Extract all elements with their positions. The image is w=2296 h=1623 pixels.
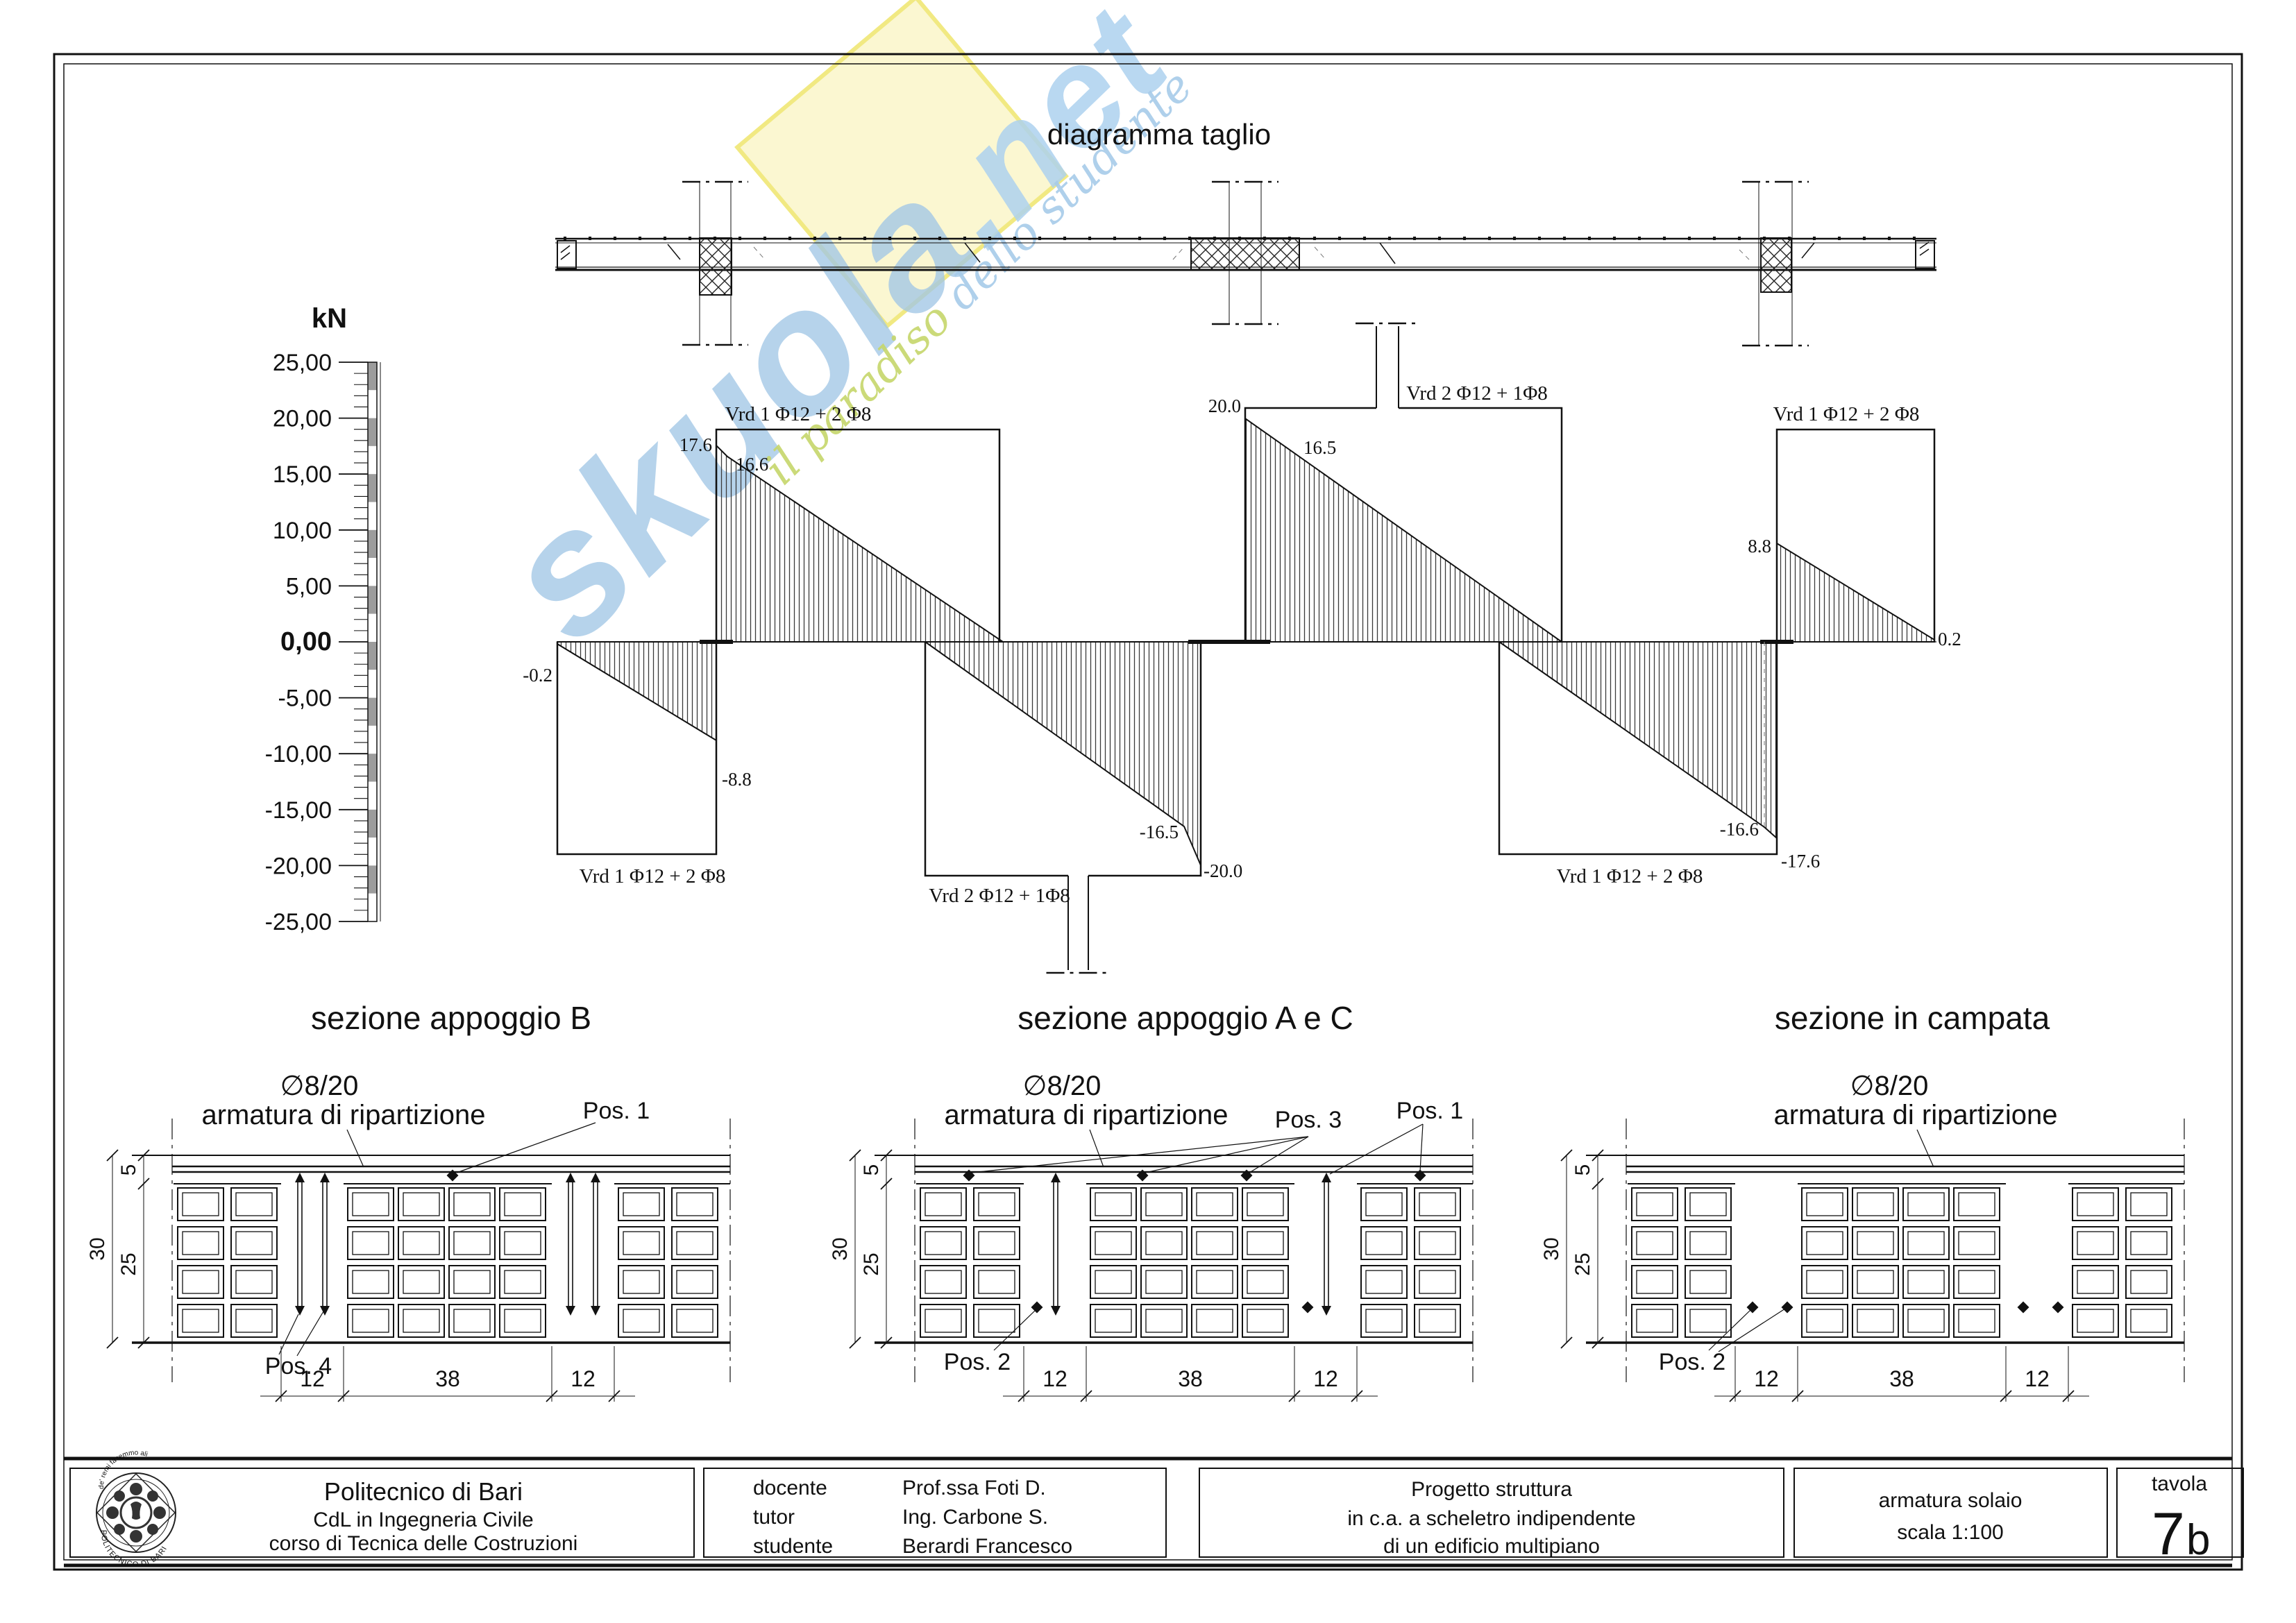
shear-value-label: 16.6 [736,454,768,475]
slab-tick [1013,237,1016,240]
hollow-block-inner [236,1271,272,1293]
arrow-down-icon [295,1306,305,1316]
hollow-block-inner [677,1309,713,1332]
dim-12: 12 [571,1366,596,1391]
ruler-segment [368,642,377,670]
dim-30: 30 [829,1237,852,1260]
slab-tick [1838,237,1841,240]
slab-tick [988,237,991,240]
slab-tick [1813,237,1816,240]
drawing-sheet: skuola.net il paradiso dello studente di… [0,0,2296,1623]
hollow-block-inner [505,1193,541,1216]
beam-schematic [555,182,1936,346]
shear-value-label: 8.8 [1748,536,1771,556]
shear-region [716,445,1003,642]
axis-tick-label: 25,00 [273,350,332,376]
dim-12: 12 [1313,1366,1338,1391]
hollow-block-inner [2077,1309,2113,1332]
axis-tick-label: 0,00 [280,627,332,656]
hollow-block-inner [1095,1271,1131,1293]
role-label-docente: docente [753,1477,827,1499]
hollow-block-inner [1690,1193,1726,1216]
pos-label: Pos. 2 [944,1349,1011,1375]
hollow-block-inner [2131,1232,2167,1255]
hollow-block-inner [1807,1271,1843,1293]
bar-diamond-marker [2052,1302,2064,1314]
slab-tick [1863,237,1866,240]
axis-tick-label: 10,00 [273,518,332,544]
slab-tick [1313,237,1316,240]
bar-diamond-marker [1302,1302,1314,1314]
hollow-block-inner [353,1193,389,1216]
shear-value-label: 0.2 [1938,629,1961,649]
hollow-block-inner [623,1193,659,1216]
section-0: sezione appoggio B∅8/20armatura di ripar… [86,1000,730,1402]
dim-30: 30 [86,1237,109,1260]
dim-12: 12 [2025,1366,2050,1391]
pos-label: Pos. 2 [1659,1349,1725,1375]
hollow-block-inner [505,1232,541,1255]
axis-tick-label: -10,00 [265,741,332,767]
kn-scale: kN25,0020,0015,0010,005,000,00-5,00-10,0… [265,303,380,935]
section-2: sezione in campata∅8/20armatura di ripar… [1540,1000,2184,1402]
arrow-up-icon [1051,1173,1061,1182]
drawing-name: armatura solaio [1879,1489,2023,1512]
stirrup-bar [298,1181,302,1307]
hollow-block-inner [1146,1232,1182,1255]
slab-tick [1088,237,1091,240]
hollow-block-inner [2077,1232,2113,1255]
vrd-label: Vrd 1 Φ12 + 2 Φ8 [580,865,726,887]
hollow-block-inner [1197,1309,1233,1332]
slab-tick [1488,237,1491,240]
vrd-label: Vrd 1 Φ12 + 2 Φ8 [725,403,872,425]
vrd-label: Vrd 2 Φ12 + 1Φ8 [1406,382,1548,405]
hollow-block-inner [454,1309,490,1332]
hollow-block-inner [979,1309,1015,1332]
shear-value-label: 17.6 [679,434,712,455]
pos-label: Pos. 1 [583,1098,650,1124]
hollow-block-inner [183,1193,219,1216]
hollow-block-inner [979,1271,1015,1293]
hollow-block-inner [1366,1309,1402,1332]
hollow-block-inner [1959,1193,1995,1216]
project-line-2: in c.a. a scheletro indipendente [1347,1507,1635,1530]
dim-5: 5 [117,1164,140,1176]
hollow-block-inner [2131,1193,2167,1216]
shear-value-label: 16.5 [1303,437,1336,458]
hollow-block-inner [1095,1309,1131,1332]
slab-tick [1388,237,1391,240]
role-value-docente: Prof.ssa Foti D. [902,1477,1046,1499]
ruler-segment [368,782,377,810]
distribution-rebar-label: armatura di ripartizione [1773,1100,2057,1130]
gear-icon [106,1483,166,1543]
hollow-block-inner [925,1271,961,1293]
dim-12: 12 [1754,1366,1779,1391]
slab-tick [1413,237,1416,240]
slab-tick [888,237,891,240]
hollow-block-inner [353,1309,389,1332]
org-dept: CdL in Ingegneria Civile [313,1509,533,1531]
hollow-block-inner [403,1309,439,1332]
rebar-spacing-label: ∅8/20 [280,1071,359,1101]
axis-tick-label: -20,00 [265,853,332,879]
hollow-block-inner [1419,1309,1455,1332]
section-title: sezione appoggio B [311,1000,591,1036]
hollow-block-inner [403,1232,439,1255]
bar-diamond-marker [1747,1302,1759,1314]
hollow-block-inner [1807,1193,1843,1216]
hollow-block-inner [623,1232,659,1255]
hollow-block-inner [1637,1271,1673,1293]
slab-tick [614,237,616,240]
arrow-up-icon [295,1173,305,1182]
hollow-block-inner [505,1309,541,1332]
axis-tick-label: -5,00 [278,686,332,712]
slab-tick [1713,237,1716,240]
hollow-block-inner [1959,1309,1995,1332]
shear-region [1777,543,1934,642]
kn-unit-label: kN [312,303,347,334]
slab-tick [1338,237,1341,240]
slab-tick [1638,237,1641,240]
role-value-tutor: Ing. Carbone S. [902,1506,1048,1529]
hollow-block-inner [1146,1193,1182,1216]
slab-tick [1513,237,1516,240]
slab-tick [664,237,666,240]
stirrup-bar [593,1181,598,1307]
hollow-block-inner [353,1232,389,1255]
slab-tick [589,237,591,240]
section-title: sezione in campata [1775,1000,2050,1036]
shear-value-label: -20.0 [1204,860,1242,881]
slab-tick [738,237,741,240]
slab-tick [564,237,566,240]
hollow-block-inner [925,1193,961,1216]
slab-tick [1363,237,1366,240]
slab-tick [639,237,641,240]
project-line-3: di un edificio multipiano [1383,1535,1600,1558]
hollow-block-inner [1959,1232,1995,1255]
arrow-down-icon [1051,1306,1061,1316]
org-course: corso di Tecnica delle Costruzioni [269,1532,578,1555]
ruler-segment [368,390,377,418]
ruler-segment [368,474,377,502]
vrd-label: Vrd 1 Φ12 + 2 Φ8 [1773,403,1920,425]
ruler-segment [368,586,377,613]
hollow-block-inner [403,1271,439,1293]
hollow-block-inner [403,1193,439,1216]
tavola-label: tavola [2152,1472,2207,1495]
ruler-segment [368,865,377,893]
hollow-block-inner [979,1232,1015,1255]
shear-region [1245,418,1562,642]
dim-5: 5 [1571,1164,1594,1176]
hollow-block-inner [677,1232,713,1255]
drawing-canvas: diagramma taglio [0,0,2296,1623]
axis-tick-label: -25,00 [265,909,332,935]
slab-tick [1688,237,1691,240]
hollow-block-inner [1959,1271,1995,1293]
hollow-block-inner [677,1271,713,1293]
section-title: sezione appoggio A e C [1018,1000,1353,1036]
stirrup-bar [323,1181,327,1307]
hollow-block-inner [2077,1271,2113,1293]
hollow-block-inner [183,1232,219,1255]
hollow-block-inner [1247,1309,1283,1332]
ruler-segment [368,362,377,390]
hollow-block-inner [1857,1232,1893,1255]
dim-5: 5 [860,1164,883,1176]
arrow-down-icon [566,1306,575,1316]
arrow-up-icon [591,1173,600,1182]
ruler-segment [368,894,377,921]
dim-38: 38 [1178,1366,1203,1391]
hollow-block-inner [1807,1309,1843,1332]
ruler-segment [368,530,377,558]
hollow-block-inner [1146,1309,1182,1332]
slab-tick [1063,237,1066,240]
shear-value-label: 20.0 [1208,396,1241,416]
politecnico-logo: POLITECNICO DI BARI de' remi facemmo ali [96,1449,176,1569]
dim-38: 38 [1889,1366,1914,1391]
floor-sections: sezione appoggio B∅8/20armatura di ripar… [86,1000,2184,1402]
hollow-block-inner [623,1309,659,1332]
slab-tick [1663,237,1666,240]
hollow-block-inner [1247,1232,1283,1255]
hollow-block-inner [1690,1309,1726,1332]
vrd-label: Vrd 2 Φ12 + 1Φ8 [929,885,1070,907]
hollow-block-inner [1857,1309,1893,1332]
svg-text:de' remi facemmo ali: de' remi facemmo ali [98,1449,149,1489]
hollow-block-inner [1690,1271,1726,1293]
slab-tick [1438,237,1441,240]
pos-label: Pos. 1 [1396,1098,1463,1124]
stirrup-bar [568,1181,573,1307]
slab-tick [763,237,766,240]
hollow-block-inner [1197,1232,1233,1255]
pos-label: Pos. 3 [1275,1107,1342,1133]
hollow-block-inner [1637,1309,1673,1332]
hollow-block-inner [183,1271,219,1293]
bar-diamond-marker [2018,1302,2029,1314]
hollow-block-inner [454,1193,490,1216]
hollow-block-inner [925,1232,961,1255]
slab-tick [1463,237,1466,240]
ruler-segment [368,726,377,754]
title-block: POLITECNICO DI BARI de' remi facemmo ali… [64,1449,2243,1569]
hollow-block-inner [1419,1193,1455,1216]
slab-tick [689,237,691,240]
slab-tick [1113,237,1116,240]
role-label-studente: studente [753,1535,833,1558]
shear-region [557,642,716,740]
hollow-block-inner [1146,1271,1182,1293]
stirrup-bar [1324,1181,1328,1307]
hollow-block-inner [236,1193,272,1216]
shear-value-label: -0.2 [523,665,552,686]
hollow-block-inner [1908,1309,1944,1332]
ruler-segment [368,670,377,697]
hollow-block-inner [454,1271,490,1293]
stirrup-bar [1054,1181,1058,1307]
dim-30: 30 [1540,1237,1563,1260]
arrow-down-icon [1322,1306,1331,1316]
dim-25: 25 [117,1252,140,1275]
hollow-block-inner [1690,1232,1726,1255]
slab-tick [813,237,816,240]
project-line-1: Progetto struttura [1411,1478,1572,1501]
axis-tick-label: 5,00 [286,573,332,600]
arrow-down-icon [591,1306,600,1316]
arrow-up-icon [1322,1173,1331,1182]
dim-38: 38 [435,1366,460,1391]
ruler-segment [368,558,377,586]
hollow-block-inner [1908,1232,1944,1255]
org-name: Politecnico di Bari [324,1477,523,1506]
ruler-segment [368,838,377,865]
ruler-segment [368,446,377,474]
support-b [1191,238,1299,270]
ruler-segment [368,754,377,781]
hollow-block-inner [1637,1232,1673,1255]
hollow-block-inner [1095,1232,1131,1255]
hollow-block-inner [236,1232,272,1255]
hollow-block-inner [1095,1193,1131,1216]
role-label-tutor: tutor [753,1506,795,1529]
hollow-block-inner [1366,1193,1402,1216]
rebar-spacing-label: ∅8/20 [1023,1071,1101,1101]
slab-tick [1038,237,1041,240]
slab-tick [788,237,791,240]
hollow-block-inner [1247,1271,1283,1293]
slab-tick [1563,237,1566,240]
ruler-segment [368,418,377,446]
slab-tick [863,237,866,240]
slab-tick [1913,237,1916,240]
hollow-block-inner [183,1309,219,1332]
arrow-up-icon [320,1173,330,1182]
ruler-segment [368,698,377,726]
hollow-block-inner [1637,1193,1673,1216]
hollow-block-inner [236,1309,272,1332]
tavola-number: 7 [2152,1501,2185,1567]
distribution-rebar-label: armatura di ripartizione [201,1100,485,1130]
dim-25: 25 [860,1252,883,1275]
shear-value-label: -8.8 [722,769,752,790]
tavola-number-suffix: b [2186,1516,2210,1564]
hollow-block-inner [2077,1193,2113,1216]
slab-tick [963,237,966,240]
support-a [700,238,732,295]
slab-tick [938,237,941,240]
hollow-block-inner [925,1309,961,1332]
ruler-segment [368,502,377,530]
axis-tick-label: 20,00 [273,406,332,432]
dim-12: 12 [1043,1366,1067,1391]
hollow-block-inner [677,1193,713,1216]
slab-tick [1613,237,1616,240]
hollow-block-inner [1419,1232,1455,1255]
role-value-studente: Berardi Francesco [902,1535,1072,1558]
hollow-block-inner [1857,1271,1893,1293]
slab-tick [1738,237,1741,240]
arrow-up-icon [566,1173,575,1182]
hollow-block-inner [353,1271,389,1293]
hollow-block-inner [1366,1271,1402,1293]
slab-tick [1538,237,1541,240]
hollow-block-inner [1419,1271,1455,1293]
section-1: sezione appoggio A e C∅8/20armatura di r… [829,1000,1473,1402]
hollow-block-inner [505,1271,541,1293]
axis-tick-label: -15,00 [265,797,332,824]
shear-value-label: -16.5 [1140,822,1179,842]
pos-label: Pos. 4 [265,1353,332,1379]
shear-region [1499,642,1777,838]
slab-tick [1888,237,1891,240]
hollow-block-inner [1197,1271,1233,1293]
hollow-block-inner [979,1193,1015,1216]
ruler-segment [368,614,377,642]
shear-value-label: -16.6 [1720,819,1759,840]
hollow-block-inner [2131,1271,2167,1293]
drawing-scale: scala 1:100 [1897,1521,2003,1544]
hollow-block-inner [1908,1193,1944,1216]
slab-tick [838,237,841,240]
shear-diagram: Vrd 1 Φ12 + 2 Φ8Vrd 1 Φ12 + 2 Φ8Vrd 2 Φ1… [523,323,1961,973]
support-c [1761,238,1791,292]
vrd-label: Vrd 1 Φ12 + 2 Φ8 [1557,865,1703,887]
slab-tick [1588,237,1591,240]
slab-tick [1163,237,1166,240]
ruler-segment [368,810,377,838]
hollow-block-inner [1807,1232,1843,1255]
page-title: diagramma taglio [1047,118,1271,151]
dim-25: 25 [1571,1252,1594,1275]
hollow-block-inner [623,1271,659,1293]
hollow-block-inner [1908,1271,1944,1293]
bar-diamond-marker [1782,1302,1793,1314]
hollow-block-inner [1197,1193,1233,1216]
hollow-block-inner [2131,1309,2167,1332]
hollow-block-inner [1366,1232,1402,1255]
slab-tick [1138,237,1141,240]
shear-value-label: -17.6 [1781,851,1820,872]
slab-tick [913,237,916,240]
hollow-block-inner [1247,1193,1283,1216]
rebar-spacing-label: ∅8/20 [1850,1071,1929,1101]
bar-diamond-marker [1031,1302,1043,1314]
hollow-block-inner [454,1232,490,1255]
distribution-rebar-label: armatura di ripartizione [944,1100,1228,1130]
axis-tick-label: 15,00 [273,461,332,488]
hollow-block-inner [1857,1193,1893,1216]
